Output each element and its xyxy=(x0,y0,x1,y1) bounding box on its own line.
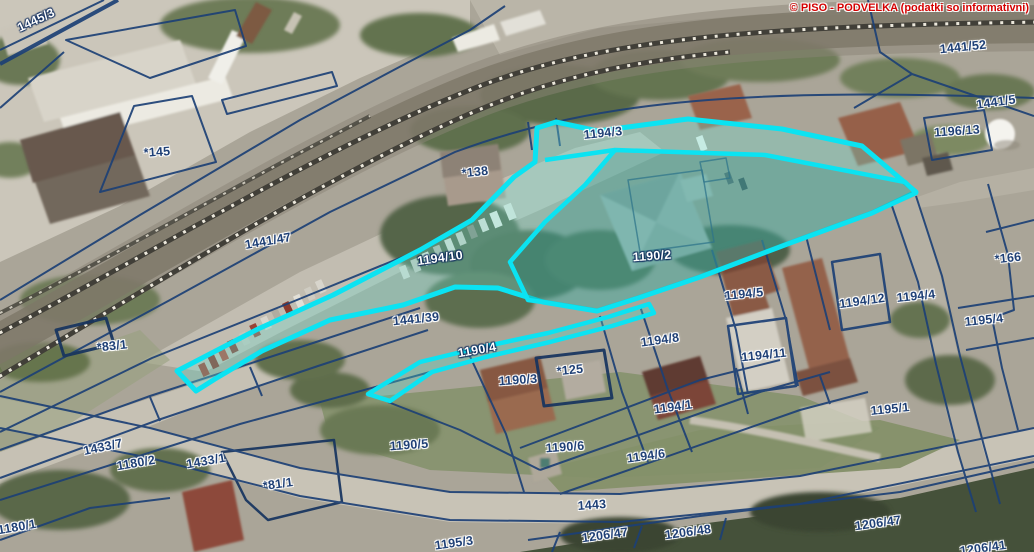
aerial-basemap xyxy=(0,0,1034,552)
copyright-notice: © PISO - PODVELKA (podatki so informativ… xyxy=(790,2,1029,14)
map-viewport[interactable]: 1445/31441/521441/51196/131194/3*138*145… xyxy=(0,0,1034,552)
